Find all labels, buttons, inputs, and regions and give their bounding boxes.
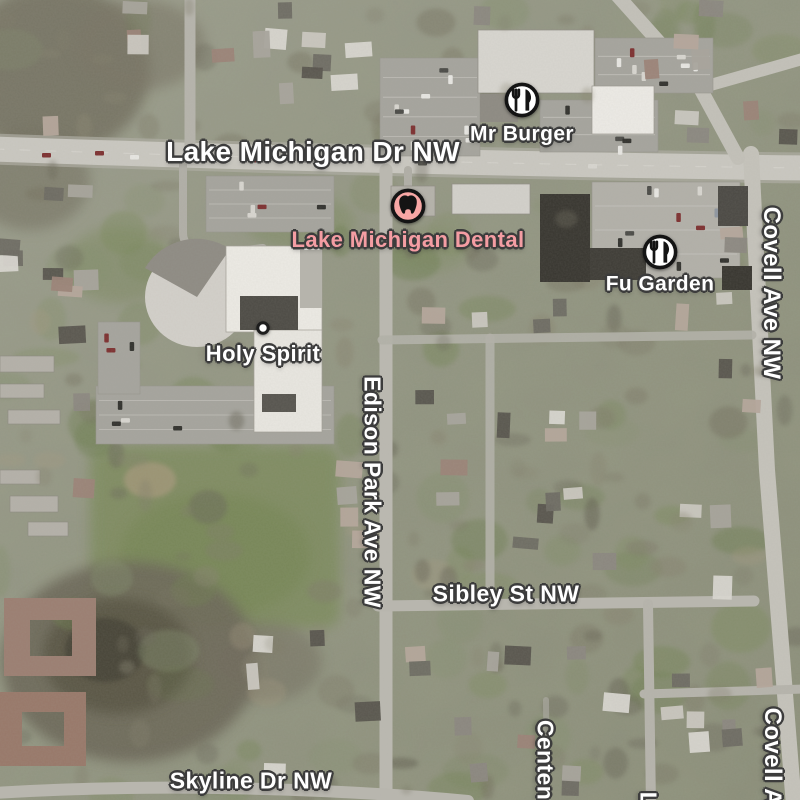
street-label-partial-street-l: L	[637, 792, 660, 800]
map-labels-overlay: Lake Michigan Dr NWEdison Park Ave NWSib…	[0, 0, 800, 800]
poi-label-mr-burger[interactable]: Mr Burger	[470, 124, 574, 145]
street-label-sibley-st-nw: Sibley St NW	[433, 583, 580, 606]
dental-icon[interactable]	[390, 188, 426, 224]
street-label-edison-park-ave-nw: Edison Park Ave NW	[361, 376, 384, 608]
restaurant-icon[interactable]	[504, 82, 540, 118]
street-label-centennial-partial: Centen	[534, 720, 557, 800]
street-label-covell-ave-nw-north: Covell Ave NW	[759, 207, 783, 380]
satellite-map-canvas[interactable]: Lake Michigan Dr NWEdison Park Ave NWSib…	[0, 0, 800, 800]
poi-label-lake-michigan-dental[interactable]: Lake Michigan Dental	[292, 229, 525, 251]
poi-label-fu-garden[interactable]: Fu Garden	[606, 274, 715, 295]
poi-dot-icon[interactable]	[255, 320, 272, 337]
restaurant-icon[interactable]	[642, 234, 678, 270]
poi-label-holy-spirit[interactable]: Holy Spirit	[206, 343, 320, 365]
street-label-covell-ave-nw-south: Covell Ave NW	[760, 708, 784, 800]
street-label-lake-michigan-dr-nw: Lake Michigan Dr NW	[166, 138, 460, 166]
street-label-skyline-dr-nw: Skyline Dr NW	[170, 770, 332, 793]
